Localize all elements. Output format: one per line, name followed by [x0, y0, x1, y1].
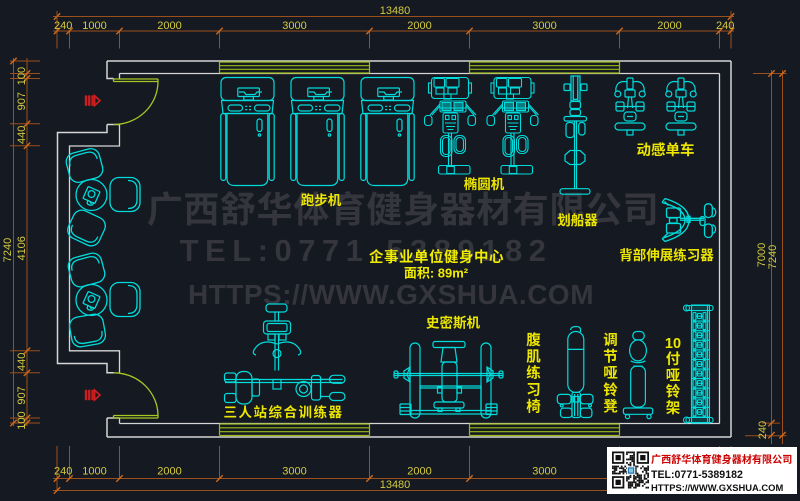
svg-text:10: 10: [665, 336, 681, 352]
svg-text:1000: 1000: [82, 20, 106, 32]
svg-text:三人站综合训练器: 三人站综合训练器: [224, 404, 344, 420]
svg-text:13480: 13480: [380, 479, 411, 491]
svg-text:节: 节: [603, 348, 618, 366]
svg-text:7240: 7240: [2, 238, 14, 262]
svg-text:907: 907: [16, 386, 28, 404]
svg-text:2000: 2000: [157, 20, 181, 32]
svg-text:240: 240: [757, 421, 769, 439]
svg-text:2000: 2000: [407, 466, 431, 478]
svg-text:划船器: 划船器: [557, 212, 598, 228]
svg-text:3000: 3000: [282, 466, 306, 478]
svg-text:440: 440: [16, 126, 28, 144]
svg-text:2000: 2000: [157, 466, 181, 478]
svg-text:HTTPS://WWW.GXSHUA.COM: HTTPS://WWW.GXSHUA.COM: [651, 482, 783, 493]
svg-text:跑步机: 跑步机: [301, 192, 342, 208]
svg-text:240: 240: [716, 20, 734, 32]
svg-text:100: 100: [16, 67, 28, 85]
svg-text:面积: 89m²: 面积: 89m²: [404, 266, 469, 281]
svg-text:4106: 4106: [16, 236, 28, 260]
svg-text:240: 240: [54, 466, 72, 478]
svg-text:椭圆机: 椭圆机: [464, 176, 505, 192]
svg-text:3000: 3000: [282, 20, 306, 32]
svg-text:哑: 哑: [603, 366, 618, 382]
svg-text:背部伸展练习器: 背部伸展练习器: [619, 247, 714, 263]
svg-text:铃: 铃: [666, 383, 681, 401]
svg-text:240: 240: [54, 20, 72, 32]
svg-text:付: 付: [666, 351, 681, 368]
svg-text:100: 100: [16, 411, 28, 429]
svg-text:3000: 3000: [532, 20, 556, 32]
svg-text:13480: 13480: [380, 5, 411, 17]
svg-text:铃: 铃: [603, 381, 618, 399]
svg-text:907: 907: [16, 92, 28, 110]
svg-text:广西舒华体育健身器材有限公司: 广西舒华体育健身器材有限公司: [651, 453, 792, 466]
svg-text:腹: 腹: [526, 332, 541, 349]
svg-text:习: 习: [526, 383, 541, 399]
svg-text:7240: 7240: [767, 245, 779, 269]
svg-text:肌: 肌: [526, 349, 541, 366]
svg-text:440: 440: [16, 353, 28, 371]
svg-text:椅: 椅: [526, 397, 541, 415]
svg-text:企事业单位健身中心: 企事业单位健身中心: [369, 248, 504, 266]
svg-text:TEL:0771-5389182: TEL:0771-5389182: [651, 469, 743, 481]
svg-text:1000: 1000: [82, 466, 106, 478]
svg-text:架: 架: [666, 399, 681, 417]
svg-text:2000: 2000: [657, 20, 681, 32]
svg-text:调: 调: [603, 332, 618, 349]
svg-text:3000: 3000: [532, 466, 556, 478]
svg-text:练: 练: [526, 364, 541, 382]
svg-text:动感单车: 动感单车: [637, 141, 695, 159]
svg-text:史密斯机: 史密斯机: [426, 315, 480, 331]
svg-text:HTTPS://WWW.GXSHUA.COM: HTTPS://WWW.GXSHUA.COM: [188, 279, 594, 310]
svg-text:2000: 2000: [407, 20, 431, 32]
svg-text:凳: 凳: [603, 398, 618, 415]
svg-text:哑: 哑: [666, 368, 681, 384]
